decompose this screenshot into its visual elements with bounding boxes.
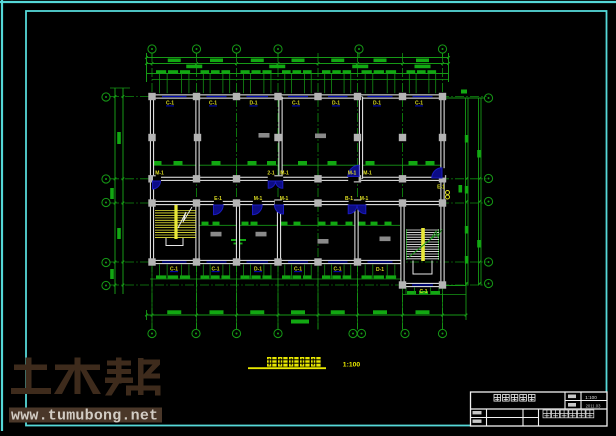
svg-text:M-1: M-1: [280, 196, 289, 202]
svg-text:C-1: C-1: [419, 289, 427, 295]
svg-text:D-1: D-1: [376, 267, 384, 273]
svg-text:2011.03: 2011.03: [586, 403, 601, 408]
svg-text:B-1: B-1: [345, 196, 353, 202]
svg-text:E-1: E-1: [437, 185, 445, 191]
svg-text:M-1: M-1: [155, 171, 164, 177]
svg-text:M-1: M-1: [280, 171, 289, 177]
svg-text:1:100: 1:100: [585, 395, 597, 400]
svg-text:M-1: M-1: [348, 171, 357, 177]
svg-text:M-1: M-1: [363, 171, 372, 177]
svg-text:E-1: E-1: [214, 196, 222, 202]
svg-text:M-1: M-1: [254, 196, 263, 202]
svg-text:www.tumubong.net: www.tumubong.net: [11, 408, 158, 425]
svg-text:M-1: M-1: [360, 196, 369, 202]
svg-text:2-1: 2-1: [267, 171, 274, 177]
svg-text:1:100: 1:100: [343, 361, 361, 368]
